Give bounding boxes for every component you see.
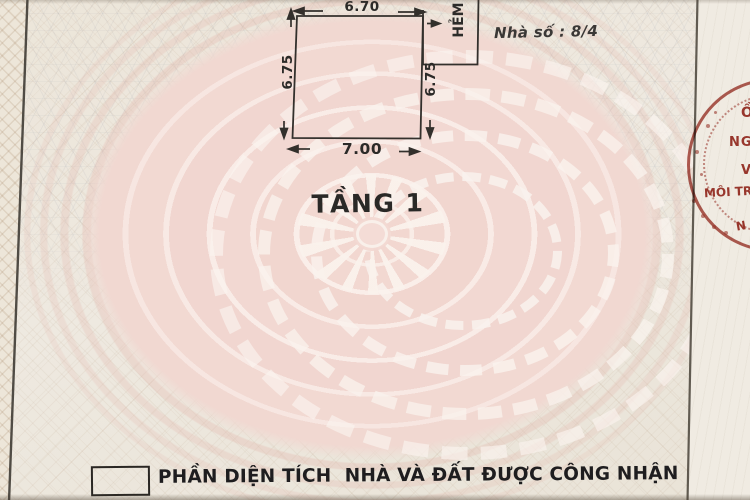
certificate-page: 6.70 6.75 6.75 7.00 TẦNG 1 HẺM Nhà số : … <box>0 0 750 500</box>
dimension-left-label: 6.75 <box>274 52 302 92</box>
legend-label: PHẦN DIỆN TÍCH NHÀ VÀ ĐẤT ĐƯỢC CÔNG NHẬN <box>158 463 679 488</box>
legend-swatch-box <box>91 466 150 497</box>
dimension-right-label: 6.75 <box>417 59 445 99</box>
photo-edge-shadow-bottom <box>0 494 750 500</box>
alley-label: HẺM <box>444 0 474 40</box>
plot-outline <box>293 16 424 139</box>
house-number-label: Nhà số : 8/4 <box>494 24 599 42</box>
floor-plan-linework <box>0 0 750 500</box>
dimension-bottom-label: 7.00 <box>334 141 390 157</box>
floor-label: TẦNG 1 <box>288 190 448 218</box>
photo-edge-shadow-top <box>0 0 750 4</box>
page-border-lines <box>9 0 698 500</box>
